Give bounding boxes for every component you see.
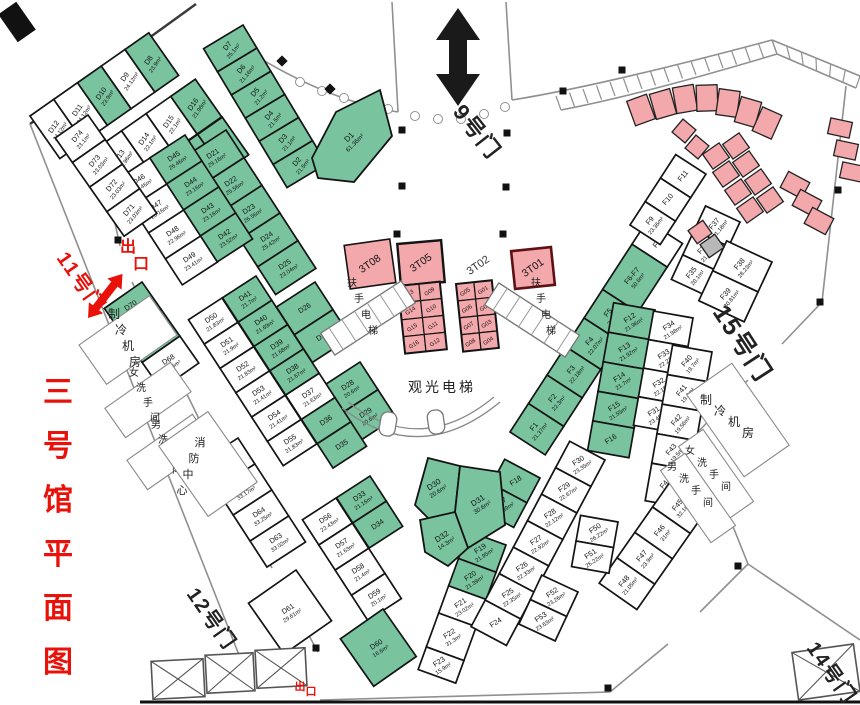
door-arc <box>318 87 327 96</box>
page-title-char: 号 <box>43 430 73 463</box>
svg-text:洗: 洗 <box>136 382 146 394</box>
wall <box>506 2 512 100</box>
svg-text:洗: 洗 <box>697 457 707 469</box>
svg-text:机: 机 <box>728 415 740 429</box>
svg-text:机: 机 <box>122 339 134 353</box>
hatch-tick <box>583 89 588 103</box>
hatch-tick <box>705 58 710 72</box>
column <box>500 231 507 238</box>
svg-text:手: 手 <box>354 292 364 305</box>
kiosk-booth <box>840 162 860 182</box>
svg-text:防: 防 <box>189 451 200 465</box>
svg-text:男: 男 <box>151 419 161 431</box>
column <box>399 183 406 190</box>
booth-strip: F5026.22m²F5126.22m² <box>572 515 619 573</box>
sightseeing-elevator-label: 观光电梯 <box>408 379 476 395</box>
column <box>619 67 626 74</box>
wall <box>320 692 610 700</box>
svg-text:梯: 梯 <box>546 324 556 337</box>
svg-text:手: 手 <box>536 292 546 305</box>
svg-text:洗: 洗 <box>679 473 689 485</box>
svg-text:房: 房 <box>742 425 754 440</box>
svg-text:制: 制 <box>700 393 712 407</box>
column <box>504 130 511 137</box>
page-title-char: 平 <box>43 538 73 571</box>
hatch-tick <box>816 58 817 71</box>
door-arc <box>501 103 510 112</box>
wall <box>700 564 748 612</box>
svg-text:手: 手 <box>691 484 701 497</box>
page-title-char: 图 <box>43 646 73 679</box>
svg-text:制: 制 <box>108 307 120 321</box>
svg-text:消: 消 <box>195 435 206 449</box>
hatch-tick <box>570 93 575 107</box>
hatch-tick <box>843 70 846 82</box>
svg-text:心: 心 <box>177 484 188 497</box>
hatch-tick <box>732 51 737 65</box>
svg-text:男: 男 <box>667 461 677 473</box>
hatch-tick <box>745 47 750 61</box>
svg-text:电: 电 <box>541 308 551 321</box>
g-booth-grid: G05G06G07G08G01G02G03G04 <box>456 280 499 351</box>
elevator-shaft <box>205 653 255 693</box>
door-arc <box>296 78 305 87</box>
page-title-char: 馆 <box>43 483 73 517</box>
hatch-tick <box>556 96 561 110</box>
column <box>560 88 567 95</box>
svg-text:手: 手 <box>709 468 719 481</box>
gate-12-label: 12号门 <box>182 583 242 654</box>
wall <box>392 2 398 112</box>
hatch-tick <box>856 76 860 88</box>
svg-text:冷: 冷 <box>714 404 726 418</box>
exhibition-hall-floor-plan: D1224.12m²D1124.12m²D1023.9m²D924.12m²D8… <box>0 0 860 705</box>
wall <box>748 564 860 640</box>
column <box>735 563 742 570</box>
booth-strip: D6129.61m² <box>248 570 331 654</box>
kiosk-booth <box>672 84 697 113</box>
door-arc <box>340 94 349 103</box>
svg-text:女: 女 <box>129 366 139 379</box>
svg-text:扶: 扶 <box>531 276 541 289</box>
hatch-tick <box>637 75 642 89</box>
gate-11-label: 11号门 <box>52 247 111 317</box>
kiosk-booth <box>696 85 718 112</box>
booth-id-3T02: 3T02 <box>465 253 492 277</box>
column <box>835 187 842 194</box>
door-arc <box>411 112 420 121</box>
corner-block <box>0 2 36 42</box>
svg-text:中: 中 <box>183 468 194 481</box>
gate-9-label: 9号门 <box>448 100 506 164</box>
svg-text:间: 间 <box>703 496 713 509</box>
exit-label: 出口 <box>120 237 149 273</box>
svg-text:房: 房 <box>129 354 141 369</box>
main-entrance-arrow-icon <box>436 8 480 106</box>
hatch-tick <box>651 72 656 86</box>
hatch-tick <box>597 86 602 100</box>
hatch-tick <box>664 68 669 82</box>
column <box>817 299 824 306</box>
svg-text:扶: 扶 <box>347 276 357 289</box>
page-title-char: 三 <box>43 376 73 409</box>
svg-text:冷: 冷 <box>115 323 127 337</box>
column <box>399 127 406 134</box>
hatch-tick <box>691 61 696 75</box>
wall <box>782 302 822 344</box>
column <box>394 231 401 238</box>
svg-text:手: 手 <box>143 396 153 409</box>
kiosk-booth <box>828 118 853 138</box>
door-arc <box>434 115 443 124</box>
floor-plan-svg: D1224.12m²D1124.12m²D1023.9m²D924.12m²D8… <box>0 0 860 705</box>
elevator-car <box>426 409 445 435</box>
elevator-shaft <box>151 659 205 700</box>
column <box>503 184 510 191</box>
svg-text:梯: 梯 <box>368 324 378 337</box>
svg-text:电: 电 <box>361 308 371 321</box>
hatch-tick <box>624 79 629 93</box>
hatch-tick <box>610 82 615 96</box>
svg-text:出: 出 <box>295 679 306 693</box>
svg-text:间: 间 <box>721 480 731 493</box>
hatch-tick <box>759 44 764 58</box>
wall <box>610 644 668 692</box>
column <box>276 55 287 66</box>
hatch-tick <box>678 65 683 79</box>
column <box>313 645 320 652</box>
page-title-char: 面 <box>43 592 73 625</box>
svg-text:出: 出 <box>120 237 136 256</box>
hatch-tick <box>830 64 831 77</box>
svg-text:口: 口 <box>306 685 317 698</box>
hatch-tick <box>801 52 803 65</box>
svg-text:口: 口 <box>133 256 149 273</box>
booth-strip: D6016.6m² <box>340 609 416 686</box>
column <box>605 685 612 692</box>
hatch-tick <box>718 54 723 68</box>
